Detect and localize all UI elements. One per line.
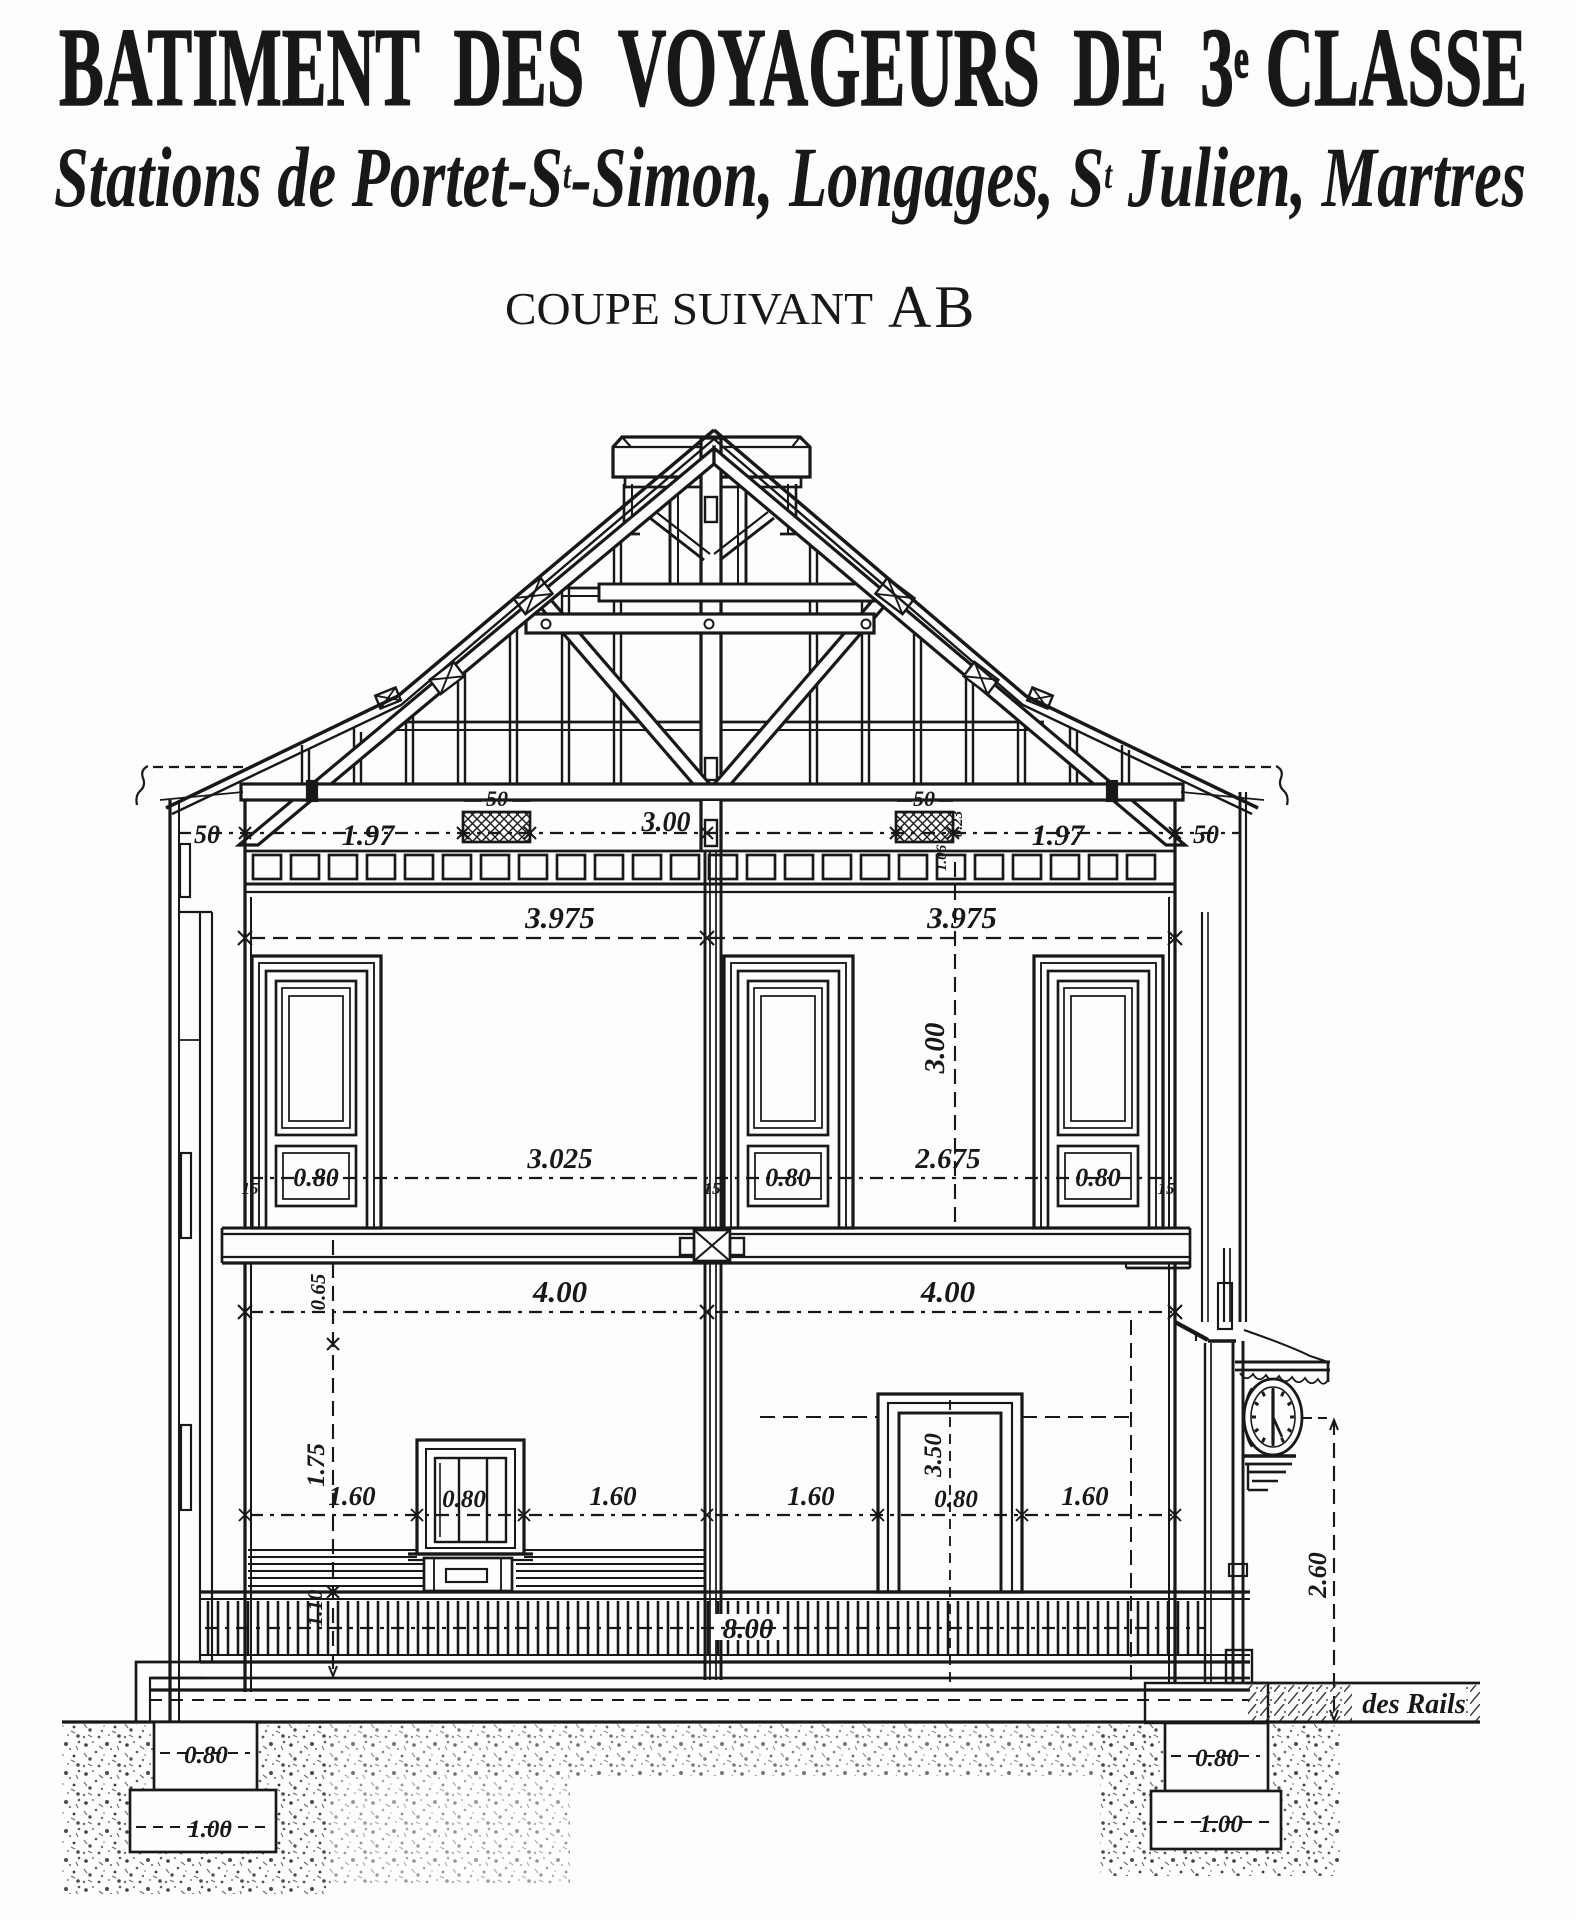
svg-text:3.975: 3.975 [524, 900, 595, 935]
svg-text:3.00: 3.00 [641, 807, 691, 838]
svg-text:0.80: 0.80 [184, 1742, 228, 1769]
svg-text:BATIMENT DES VOYAGEURS DE: BATIMENT DES VOYAGEURS DE 3e CLASSE [59, 6, 1527, 130]
svg-text:0.80: 0.80 [442, 1486, 486, 1513]
svg-text:AB: AB [888, 274, 977, 340]
svg-text:1.60: 1.60 [328, 1481, 376, 1511]
svg-text:COUPE SUIVANT: COUPE SUIVANT [505, 283, 873, 334]
svg-text:1.10: 1.10 [303, 1589, 327, 1626]
svg-text:1.60: 1.60 [1061, 1481, 1109, 1511]
svg-text:1.97: 1.97 [342, 819, 396, 852]
svg-text:Stations de Portet-St-Simon, L: Stations de Portet-St-Simon, Longages, S… [54, 129, 1526, 225]
svg-text:4.00: 4.00 [532, 1274, 587, 1309]
svg-text:0.23: 0.23 [950, 810, 966, 837]
svg-text:50: 50 [194, 820, 220, 849]
svg-text:50: 50 [1193, 820, 1219, 849]
svg-text:1.60: 1.60 [787, 1481, 835, 1511]
svg-text:2.60: 2.60 [1303, 1552, 1332, 1599]
svg-text:50: 50 [486, 786, 508, 811]
svg-text:des Rails: des Rails [1362, 1689, 1466, 1720]
svg-text:15: 15 [704, 1179, 722, 1198]
svg-text:0.65: 0.65 [306, 1274, 330, 1311]
svg-text:1.97: 1.97 [1032, 819, 1086, 852]
svg-text:2.675: 2.675 [914, 1143, 980, 1175]
svg-text:1.00: 1.00 [1199, 1811, 1243, 1838]
svg-text:1.00: 1.00 [188, 1816, 232, 1843]
svg-text:3.975: 3.975 [926, 900, 997, 935]
svg-text:15: 15 [242, 1179, 260, 1198]
svg-text:3.50: 3.50 [920, 1433, 947, 1478]
svg-text:50: 50 [913, 786, 935, 811]
svg-text:1.75: 1.75 [303, 1443, 330, 1487]
svg-text:4.00: 4.00 [920, 1274, 975, 1309]
svg-text:0.80: 0.80 [1195, 1745, 1239, 1772]
svg-text:15: 15 [1158, 1179, 1176, 1198]
svg-text:0.80: 0.80 [934, 1486, 978, 1513]
svg-text:3.025: 3.025 [526, 1143, 592, 1175]
svg-text:3.00: 3.00 [919, 1023, 951, 1075]
svg-text:1.60: 1.60 [589, 1481, 637, 1511]
svg-text:8.00: 8.00 [723, 1613, 774, 1645]
